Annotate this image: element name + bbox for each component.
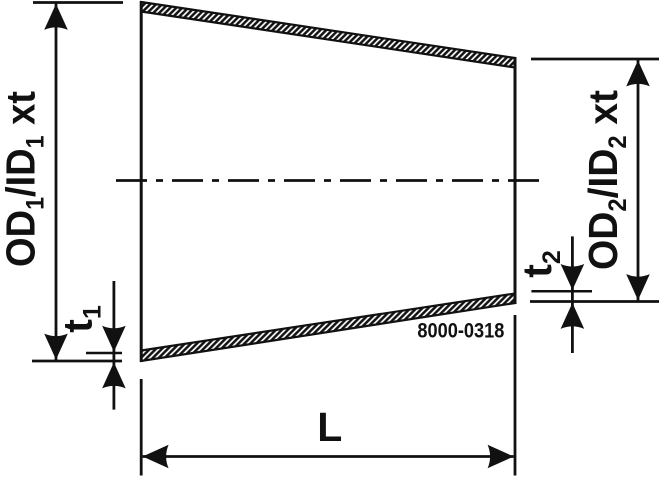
svg-text:L: L	[317, 404, 342, 450]
svg-text:OD2/ID2 xt: OD2/ID2 xt	[580, 90, 632, 270]
svg-text:8000-0318: 8000-0318	[417, 320, 504, 343]
svg-text:OD1/ID1 xt: OD1/ID1 xt	[0, 91, 50, 267]
